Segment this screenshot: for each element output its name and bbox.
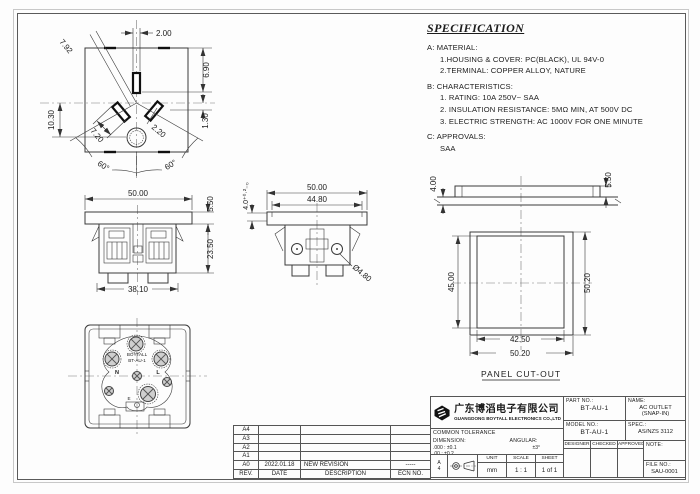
rev-cell [258,425,300,434]
spec-line: B: CHARACTERISTICS: [427,81,689,93]
rev-header-cell: DESCRIPTION [300,469,390,478]
spec-line: A: MATERIAL: [427,42,689,54]
name-label: NAME: [626,397,685,405]
rev-cell: A2 [233,443,258,452]
terminal-n-marking: N [115,370,119,376]
designer-label: DESIGNER [564,441,590,449]
front-elevation-view: 50.00 5.50 23.50 38.10 [85,189,215,295]
dim-label: 7.20 [88,127,105,145]
specification-title: SPECIFICATION [427,21,689,36]
rev-cell [390,451,430,460]
rev-header-cell: ECN NO. [390,469,430,478]
dim-label: 4.00 [429,176,438,192]
dim-label: 10.30 [47,109,56,130]
spec-line: 2. INSULATION RESISTANCE: 5MΩ MIN, AT 50… [440,104,689,116]
rev-cell [390,434,430,443]
dim-label: 6.90 [202,62,211,78]
spec-cell: SPEC.: AS/NZS 3112 [625,420,686,441]
rev-header-cell: REV. [233,469,258,478]
panel-cutout-view: 4.00 5.50 45.00 50.20 42.50 50.20 PANEL … [429,172,621,380]
rev-cell [300,434,390,443]
rev-cell: NEW REVISION [300,460,390,469]
angle-label: 60° [96,159,111,173]
terminal-l-marking: L [156,370,160,376]
part-no-value: BT-AU-1 [564,405,625,412]
spec-label: SPEC.: [626,421,685,429]
dim-label: 5.50 [206,196,215,212]
note-cell: NOTE: [643,440,686,461]
dim-label: 4.0⁺⁰·²₋₀ [242,182,250,210]
dim-label: 23.50 [206,238,215,259]
scale-value: 1 : 1 [507,463,535,477]
dim-label: 1.30 [201,113,210,129]
dim-label: Ø4.80 [351,263,374,284]
checked-label: CHECKED [591,441,617,449]
spec-line: 3. ELECTRIC STRENGTH: AC 1000V FOR ONE M… [440,116,689,128]
sheet-cell: SHEET 1 of 1 [535,455,563,477]
spec-value: AS/NZS 3112 [626,429,685,435]
angular-label: ANGULAR: [508,437,563,445]
specification-block: SPECIFICATION A: MATERIAL: 1.HOUSING & C… [427,21,689,154]
rev-cell [258,443,300,452]
sheet-value: 1 of 1 [536,463,563,477]
rear-view: BOYTALL BT-AU-1 N L E [68,318,207,436]
rev-cell [390,425,430,434]
tolerance-cell: COMMON TOLERANCE DIMENSION: .000 : ±0.1 … [430,428,564,455]
paper-size: 4 [431,466,447,472]
rev-cell [300,451,390,460]
angular-value: ±3° [508,445,563,451]
dim-label: 50.20 [583,272,592,293]
dim-label: 50.00 [128,189,149,198]
sheet-label: SHEET [536,455,563,463]
unit-value: mm [478,463,506,477]
terminal-e-marking: E [127,396,130,401]
model-no-value: BT-AU-1 [564,429,625,436]
side-elevation-view: 50.00 44.80 4.0⁺⁰·²₋₀ Ø4.80 [242,182,374,287]
rev-cell: 2022.01.18 [258,460,300,469]
paper-size-cell: A 4 [431,455,447,477]
dim-label: 50.20 [510,349,531,358]
checked-cell: CHECKED [590,440,618,478]
dim-label: 7.92 [57,38,74,56]
company-name-en: GUANGDONG BOYTALL ELECTRONICS CO.,LTD [454,416,561,421]
revision-table: A4 A3 A2 A1 A0 2022.01.18 NEW REVISION -… [233,425,431,479]
rev-cell: ----- [390,460,430,469]
company-logo-icon [433,402,451,424]
title-block: 广东博滔电子有限公司 GUANGDONG BOYTALL ELECTRONICS… [430,396,686,478]
approved-cell: APPROVED [617,440,644,478]
dim-label: 45.00 [447,271,456,292]
rev-cell: A1 [233,451,258,460]
rev-cell [258,451,300,460]
scale-label: SCALE [507,455,535,463]
note-label: NOTE: [644,441,685,449]
rev-cell: A4 [233,425,258,434]
dimension-label: DIMENSION: [431,437,508,445]
dim-label: 50.00 [307,183,328,192]
rev-cell: A0 [233,460,258,469]
rev-cell: A3 [233,434,258,443]
panel-cutout-caption: PANEL CUT-OUT [481,369,561,379]
spec-line: 1. RATING: 10A 250V~ SAA [440,92,689,104]
file-no-cell: FILE NO.: SAU-0001 [643,460,686,478]
projection-symbol-cell [447,455,477,477]
front-view: 2.00 7.92 6.90 10.30 1.30 2.20 7.20 60° … [40,20,215,178]
first-angle-projection-icon [449,457,477,475]
part-no-label: PART NO.: [564,397,625,405]
dim-label: 44.80 [307,195,328,204]
dim-label: 5.50 [604,172,613,188]
rev-cell [300,425,390,434]
rear-model-marking: BT-AU-1 [128,358,146,363]
spec-line: C: APPROVALS: [427,131,689,143]
tolerance-title: COMMON TOLERANCE [431,429,563,437]
spec-line: 1.HOUSING & COVER: PC(BLACK), UL 94V-0 [440,54,689,66]
scale-cell: SCALE 1 : 1 [506,455,535,477]
model-no-cell: MODEL NO.: BT-AU-1 [563,420,626,441]
part-no-cell: PART NO.: BT-AU-1 [563,396,626,421]
model-no-label: MODEL NO.: [564,421,625,429]
approved-label: APPROVED [618,441,643,449]
rev-cell [300,443,390,452]
file-no-value: SAU-0001 [644,469,685,475]
unit-cell: UNIT mm [477,455,506,477]
dim-label: 2.20 [150,123,168,140]
file-no-label: FILE NO.: [644,461,685,469]
rev-header-cell: DATE [258,469,300,478]
unit-label: UNIT [478,455,506,463]
spec-line: SAA [440,143,689,155]
company-cell: 广东博滔电子有限公司 GUANGDONG BOYTALL ELECTRONICS… [430,396,564,429]
spec-line: 2.TERMINAL: COPPER ALLOY, NATURE [440,65,689,77]
sheet-info-row: A 4 UNIT mm SCALE 1 : 1 SHEET 1 of 1 [430,454,564,478]
rear-brand-marking: BOYTALL [127,352,148,357]
angle-label: 60° [163,158,178,172]
designer-cell: DESIGNER [563,440,591,478]
rev-cell [258,434,300,443]
dim-label: 38.10 [128,285,149,294]
company-name-cn: 广东博滔电子有限公司 [454,404,561,416]
dim-label: 2.00 [156,29,172,38]
rev-cell [390,443,430,452]
name-cell: NAME: AC OUTLET (SNAP-IN) [625,396,686,421]
dim-label: 42.50 [510,335,531,344]
name-value: (SNAP-IN) [626,411,685,417]
